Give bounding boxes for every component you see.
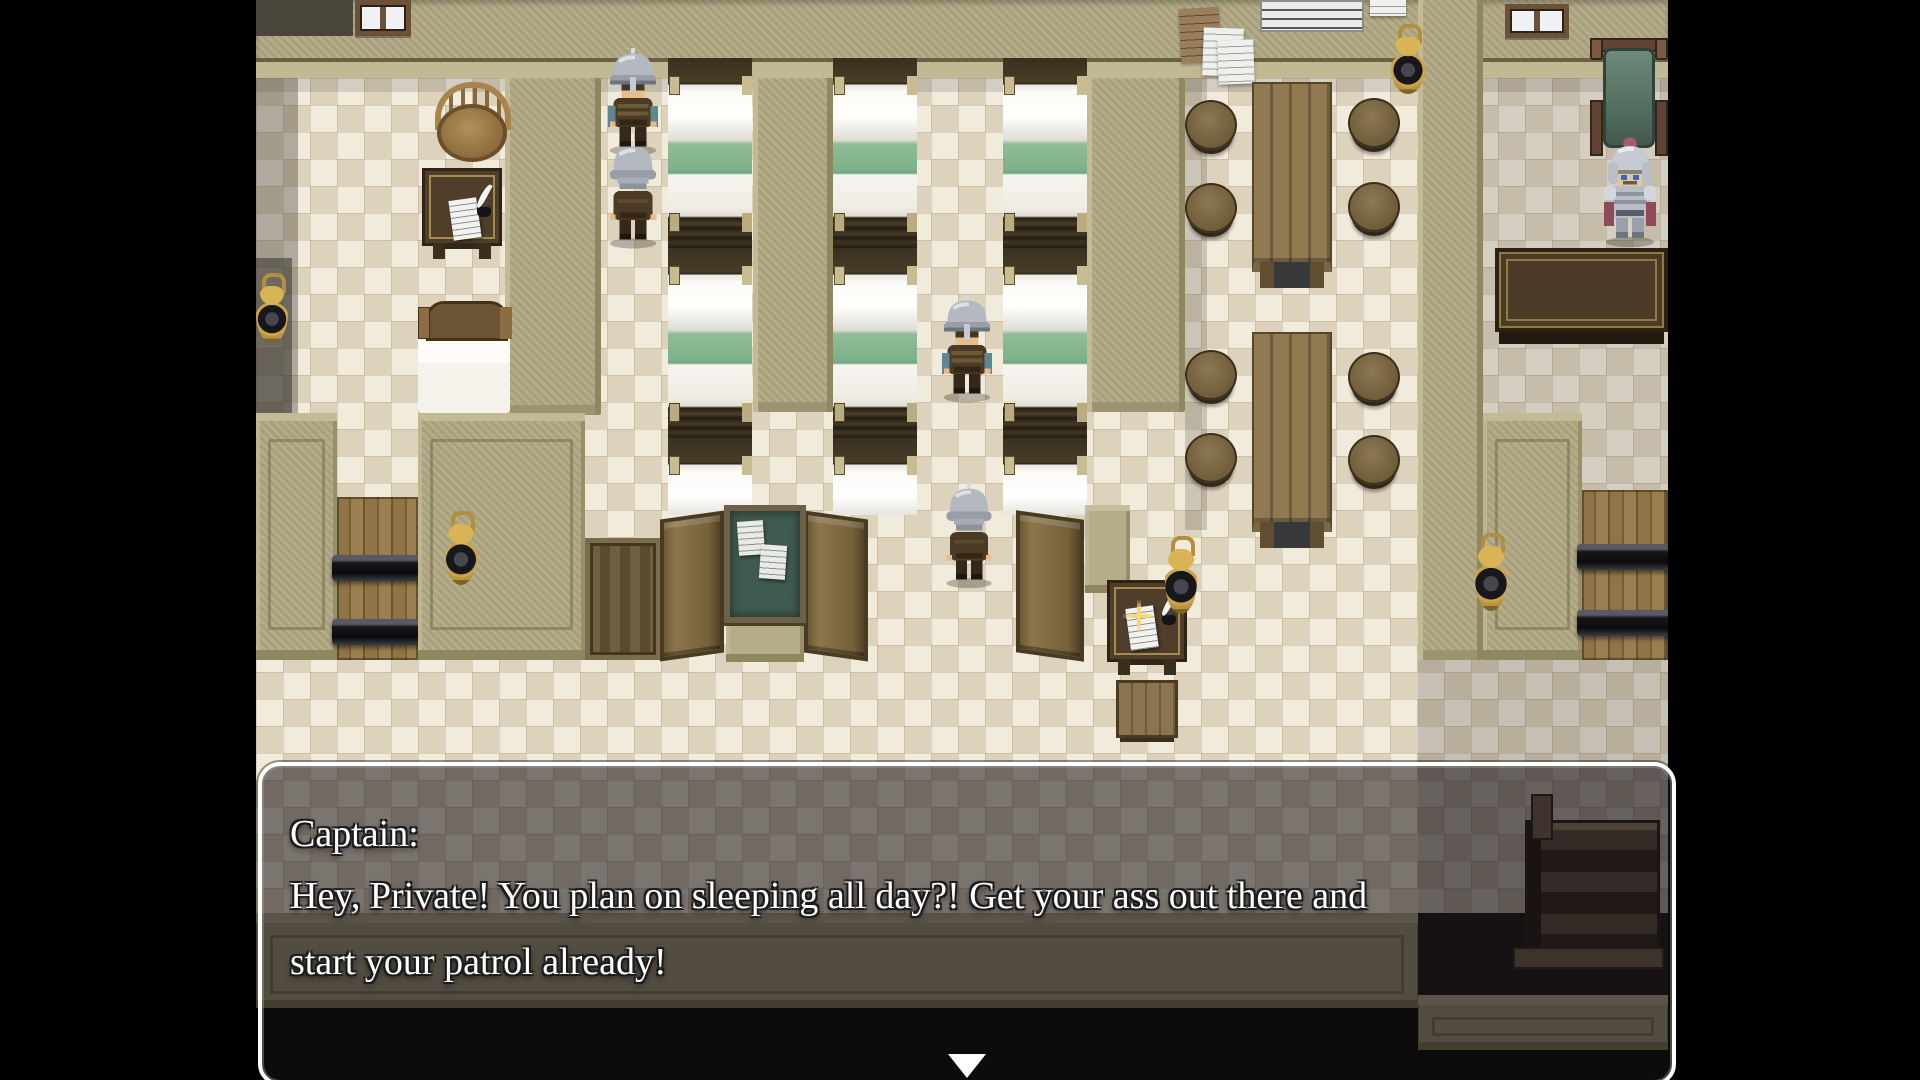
bed <box>833 248 917 438</box>
swinging-gate[interactable] <box>804 511 868 662</box>
bed-column-2 <box>833 58 917 515</box>
dialogue-line-1: Hey, Private! You plan on sleeping all d… <box>290 874 1367 918</box>
bed <box>1003 438 1087 515</box>
bed <box>1003 58 1087 248</box>
iron-band <box>1577 610 1668 636</box>
wooden-stool <box>1116 680 1178 738</box>
pillar-bed-1 <box>753 78 833 412</box>
knight-captain-sprite[interactable] <box>1598 136 1662 248</box>
pillar-bed-2 <box>1087 78 1185 412</box>
office-window <box>1505 4 1569 38</box>
swinging-gate[interactable] <box>660 511 724 662</box>
stool <box>1185 100 1237 150</box>
iron-band <box>332 555 423 581</box>
soldier-sprite-up[interactable] <box>938 483 1000 589</box>
wall-note-small <box>1370 0 1406 16</box>
pillar-left <box>505 78 601 415</box>
bed <box>1003 248 1087 438</box>
stool <box>1185 350 1237 400</box>
pillar-office-divider <box>1418 0 1483 660</box>
south-block-a <box>256 413 337 660</box>
bed <box>668 438 752 515</box>
dining-table-2 <box>1252 332 1332 532</box>
stool <box>1348 352 1400 402</box>
round-chair <box>432 82 504 156</box>
window <box>355 0 411 36</box>
bed-column-3 <box>1003 58 1087 515</box>
soldier-sprite-up[interactable] <box>602 140 664 250</box>
bed <box>833 438 917 515</box>
lantern-icon <box>445 511 477 585</box>
sparkle-icon <box>1122 599 1156 633</box>
dialogue-line-2: start your patrol already! <box>290 940 667 984</box>
notice-board[interactable] <box>724 505 806 623</box>
plank-gate-right <box>1582 490 1668 660</box>
wall-chart <box>1260 0 1364 32</box>
bed <box>833 58 917 248</box>
standing-lamp-icon <box>1390 24 1426 94</box>
lantern-icon <box>1165 536 1197 614</box>
swinging-gate[interactable] <box>1016 510 1084 662</box>
iron-band <box>1577 544 1668 570</box>
south-block-b <box>418 413 585 660</box>
stool <box>1185 183 1237 233</box>
continue-indicator-icon[interactable] <box>948 1054 986 1078</box>
wall-note-white-2 <box>1217 39 1255 84</box>
chair-cushion <box>1603 48 1655 148</box>
stool <box>1348 98 1400 148</box>
dining-table-1 <box>1252 82 1332 272</box>
game-screen: Captain: Hey, Private! You plan on sleep… <box>0 0 1920 1080</box>
wooden-door[interactable] <box>585 538 661 660</box>
stool <box>1185 433 1237 483</box>
dialogue-speaker: Captain: <box>290 812 419 856</box>
dark-wall-corner <box>256 0 353 36</box>
stool <box>1348 435 1400 485</box>
lantern-icon <box>1475 533 1507 611</box>
bed-column-1 <box>668 58 752 515</box>
dialogue-window[interactable]: Captain: Hey, Private! You plan on sleep… <box>258 762 1676 1080</box>
soldier-sprite-down[interactable] <box>936 293 998 405</box>
lantern-icon <box>256 273 288 343</box>
pinned-paper <box>759 544 787 580</box>
plank-gate-left <box>337 497 418 660</box>
bed <box>668 58 752 248</box>
chair-knob <box>1655 38 1668 60</box>
single-bed <box>418 301 510 413</box>
stool <box>1348 182 1400 232</box>
bed <box>668 248 752 438</box>
captain-desk <box>1495 248 1668 332</box>
chair-knob <box>1590 38 1603 60</box>
iron-band <box>332 619 423 645</box>
writing-desk-left <box>422 168 502 246</box>
